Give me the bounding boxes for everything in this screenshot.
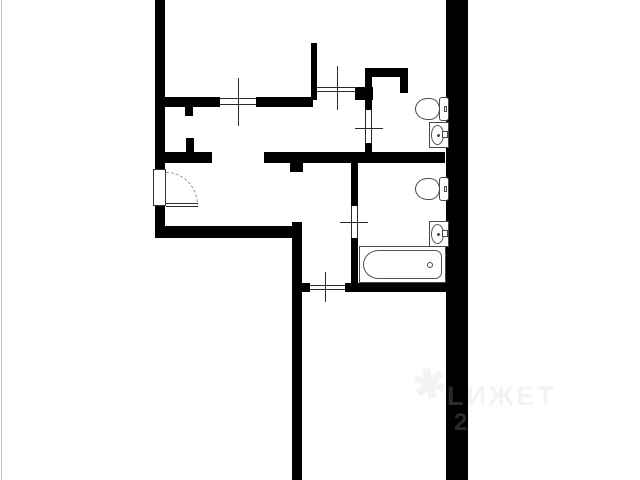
image-edge-line [1,0,2,480]
wc-door-tick [355,128,383,129]
sink-drain [437,134,440,137]
hall-wall-up-stub [186,138,194,152]
sink-faucet [442,131,448,138]
bathtub [359,246,446,283]
toilet-upper-bathroom [415,97,449,121]
toilet-flush-button [444,106,447,112]
entry-door-leaf [153,169,166,206]
hall-wall-down-stub [290,163,303,172]
sink-upper-bathroom [429,122,449,148]
sink-lower-bathroom [429,221,449,247]
sink-drain [437,233,440,236]
sink-faucet [442,230,448,237]
top-window-wall-left [165,97,220,107]
top-wall-down-stub [185,107,193,116]
wc-door-line-1 [365,110,366,143]
top-window-tick [238,78,239,126]
watermark-logo-icon: ✱ [409,360,451,410]
hall-wall-right-segment [264,152,445,163]
top-window-wall-right [256,97,313,107]
left-wall-upper [155,0,165,170]
corridor-wall [292,222,302,480]
bedroom-opening-line-1 [310,285,345,286]
bedroom-opening-tick [325,272,326,302]
right-outer-wall [446,0,468,480]
entry-door-arc [166,172,198,205]
toilet-flush-button [444,186,447,192]
bathroom-bottom-wall [345,283,446,292]
hall-wall-left-segment [165,152,212,163]
bathroom-left-wall-upper [351,163,358,206]
floor-plan-image: ✱ LИЖЕТ 2 ✱ LИЖЕТ 2 [0,0,640,480]
bathtub-drain [427,262,433,268]
toilet-bowl [415,178,440,200]
toilet-lower-bathroom [415,177,449,201]
living-room-bottom-wall [155,226,302,238]
bedroom-opening-line-2 [310,289,345,290]
corridor-wall-right-stub [302,283,310,292]
entry-threshold-line-2 [166,206,198,207]
inner-window-tick [337,66,338,110]
watermark-logo-icon: ✱ [409,360,451,410]
bathroom-left-wall-lower [351,238,358,283]
wc-door-line-2 [371,110,372,143]
watermark: ✱ LИЖЕТ 2 ✱ LИЖЕТ 2 [0,0,640,480]
wc-top-wall [365,68,408,77]
bathroom-door-tick [340,222,368,223]
wc-duct-stub [400,77,408,93]
toilet-bowl [415,98,440,120]
wc-left-wall-lower [365,143,372,155]
